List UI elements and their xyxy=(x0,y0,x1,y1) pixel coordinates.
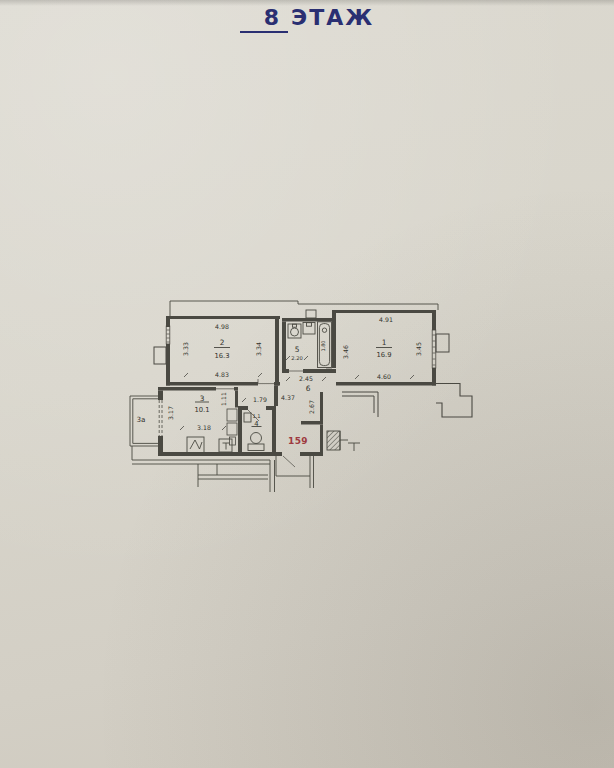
floor-plan-container: 4.98 3.33 3.34 2 16.3 4.83 5 2.20 1.80 4… xyxy=(120,288,480,498)
dim-room2-top: 4.98 xyxy=(215,323,229,330)
balcony-door-window xyxy=(159,400,162,436)
dim-room2-left: 3.33 xyxy=(182,342,189,356)
floor-number: 8 xyxy=(240,5,288,33)
dimension-ticks xyxy=(180,356,414,430)
room1-area: 16.9 xyxy=(376,351,391,359)
vent-shaft xyxy=(306,310,316,318)
room2-area: 16.3 xyxy=(214,352,229,360)
dim-room2-bottom: 4.83 xyxy=(215,371,229,378)
room3-area: 10.1 xyxy=(194,406,209,414)
page-title: 8ЭТАЖ xyxy=(0,5,614,30)
labels: 4.98 3.33 3.34 2 16.3 4.83 5 2.20 1.80 4… xyxy=(137,316,422,446)
dim-room3-left: 3.17 xyxy=(167,406,174,420)
dim-corridor-top: 2.45 xyxy=(299,375,313,382)
dim-corridor-left: 1.79 xyxy=(253,396,267,403)
dim-room1-right: 3.45 xyxy=(415,342,422,356)
dim-room2-right: 3.34 xyxy=(255,342,262,356)
room4-number: 4 xyxy=(254,420,258,428)
room6-number: 6 xyxy=(306,384,311,393)
washing-machine-icon xyxy=(303,323,315,335)
walls xyxy=(158,310,436,456)
room1-number: 1 xyxy=(382,338,387,347)
dim-room1-bottom: 4.60 xyxy=(377,373,391,380)
photo-of-floorplan: { "title": { "floor": "8", "word": "ЭТАЖ… xyxy=(0,0,614,768)
room3a-number: 3а xyxy=(137,415,146,424)
shaft-hatched-block xyxy=(327,431,340,450)
apartment-number: 159 xyxy=(288,436,308,446)
room2-number: 2 xyxy=(220,338,225,347)
dim-corridor-length: 4.37 xyxy=(281,394,295,401)
floor-word: ЭТАЖ xyxy=(291,5,374,30)
sink-icon xyxy=(288,324,301,338)
dim-corridor-right: 2.67 xyxy=(308,400,315,414)
closet-box xyxy=(227,423,237,435)
dim-closet: 1.11 xyxy=(220,392,227,406)
dim-bathtub: 1.80 xyxy=(320,340,326,351)
window-room1 xyxy=(432,330,436,368)
dim-room5-bottom: 2.20 xyxy=(291,355,303,361)
closet-box xyxy=(227,409,237,421)
dim-room4: 1.1 xyxy=(252,413,260,419)
room3-number: 3 xyxy=(200,394,205,403)
floor-plan: 4.98 3.33 3.34 2 16.3 4.83 5 2.20 1.80 4… xyxy=(120,288,480,498)
stove-icon xyxy=(187,437,204,453)
room5-number: 5 xyxy=(295,345,300,354)
dim-room1-top: 4.91 xyxy=(379,316,393,323)
vent-box-icon xyxy=(219,439,232,452)
window-room2 xyxy=(166,326,170,344)
dim-room1-left: 3.46 xyxy=(342,345,349,359)
dim-room3-bottom: 3.18 xyxy=(197,424,211,431)
